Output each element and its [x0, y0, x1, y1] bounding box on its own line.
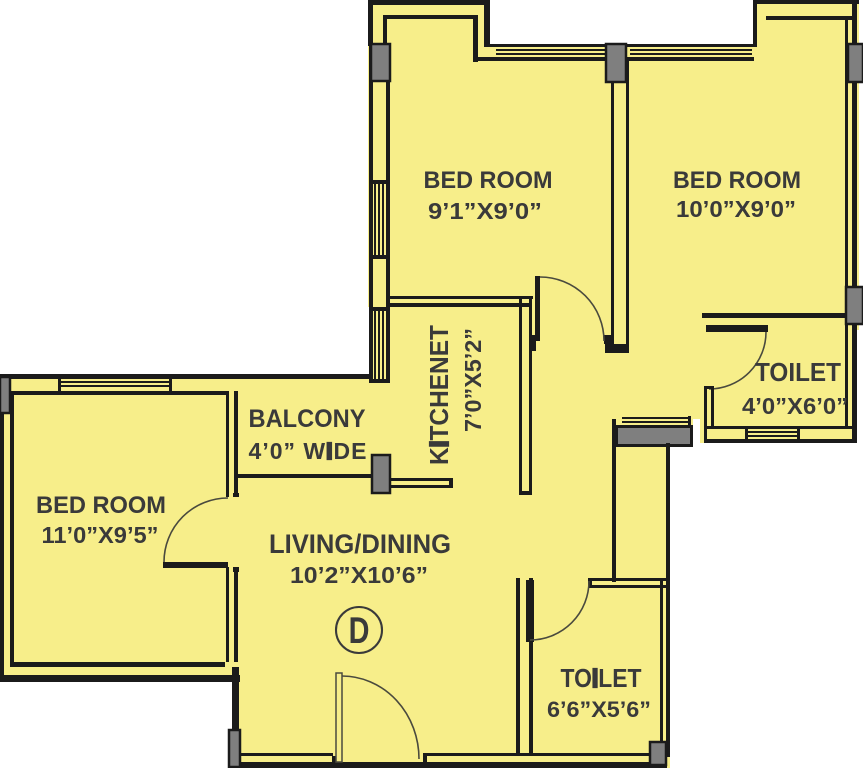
svg-text:LIVING/DINING: LIVING/DINING: [269, 529, 451, 559]
svg-text:11’0”X9’5”: 11’0”X9’5”: [42, 522, 159, 548]
svg-text:10’2”X10’6”: 10’2”X10’6”: [290, 562, 428, 588]
svg-text:KITCHENET: KITCHENET: [424, 325, 454, 465]
svg-text:9’1”X9’0”: 9’1”X9’0”: [428, 198, 542, 224]
svg-text:10’0”X9’0”: 10’0”X9’0”: [676, 196, 796, 222]
svg-text:BED ROOM: BED ROOM: [673, 167, 801, 194]
svg-text:4’0”X6’0”: 4’0”X6’0”: [742, 393, 848, 419]
svg-text:BALCONY: BALCONY: [249, 405, 366, 433]
svg-text:TOILET: TOILET: [561, 663, 642, 693]
svg-text:D: D: [349, 611, 370, 652]
svg-text:7’0”X5’2”: 7’0”X5’2”: [460, 328, 486, 432]
svg-text:6’6”X5’6”: 6’6”X5’6”: [547, 697, 651, 722]
svg-text:4’0” WIDE: 4’0” WIDE: [249, 438, 368, 464]
svg-text:TOILET: TOILET: [755, 357, 841, 387]
svg-text:BED ROOM: BED ROOM: [424, 167, 553, 194]
svg-text:BED ROOM: BED ROOM: [36, 492, 166, 519]
